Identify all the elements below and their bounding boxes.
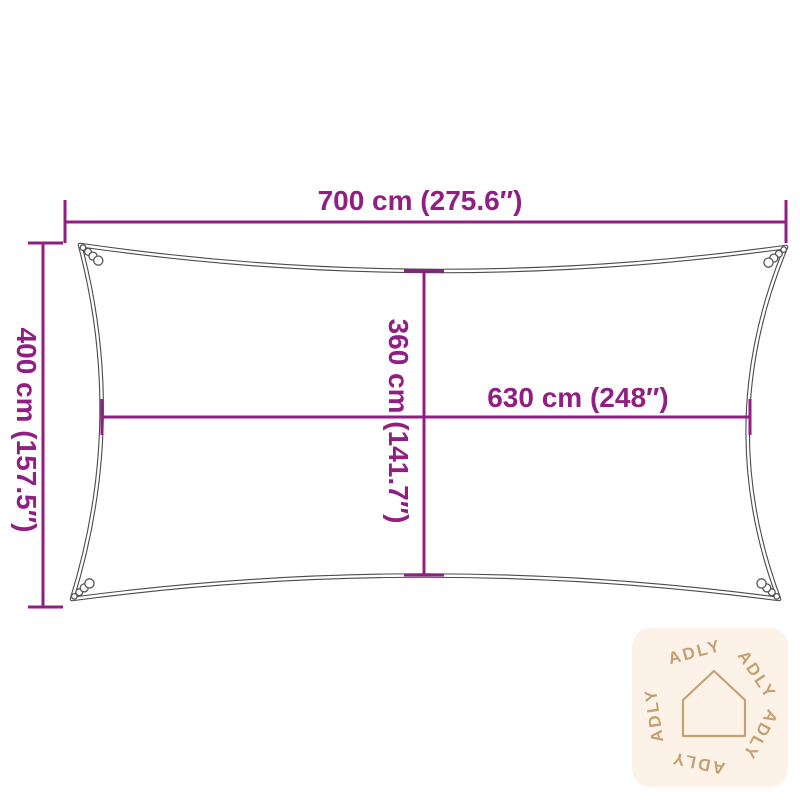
dimension-label-left-height: 400 cm (157.5″): [12, 328, 40, 533]
sail-shape: [72, 245, 786, 599]
brand-watermark-badge: ADLY ADLY ADLY ADLY ADLY: [632, 628, 788, 787]
dimension-label-top-width: 700 cm (275.6″): [318, 187, 523, 215]
diagram-canvas: 700 cm (275.6″) 400 cm (157.5″) 360 cm (…: [0, 0, 800, 800]
dimension-label-inner-height: 360 cm (141.7″): [384, 319, 412, 524]
dimension-label-inner-width: 630 cm (248″): [487, 384, 669, 412]
